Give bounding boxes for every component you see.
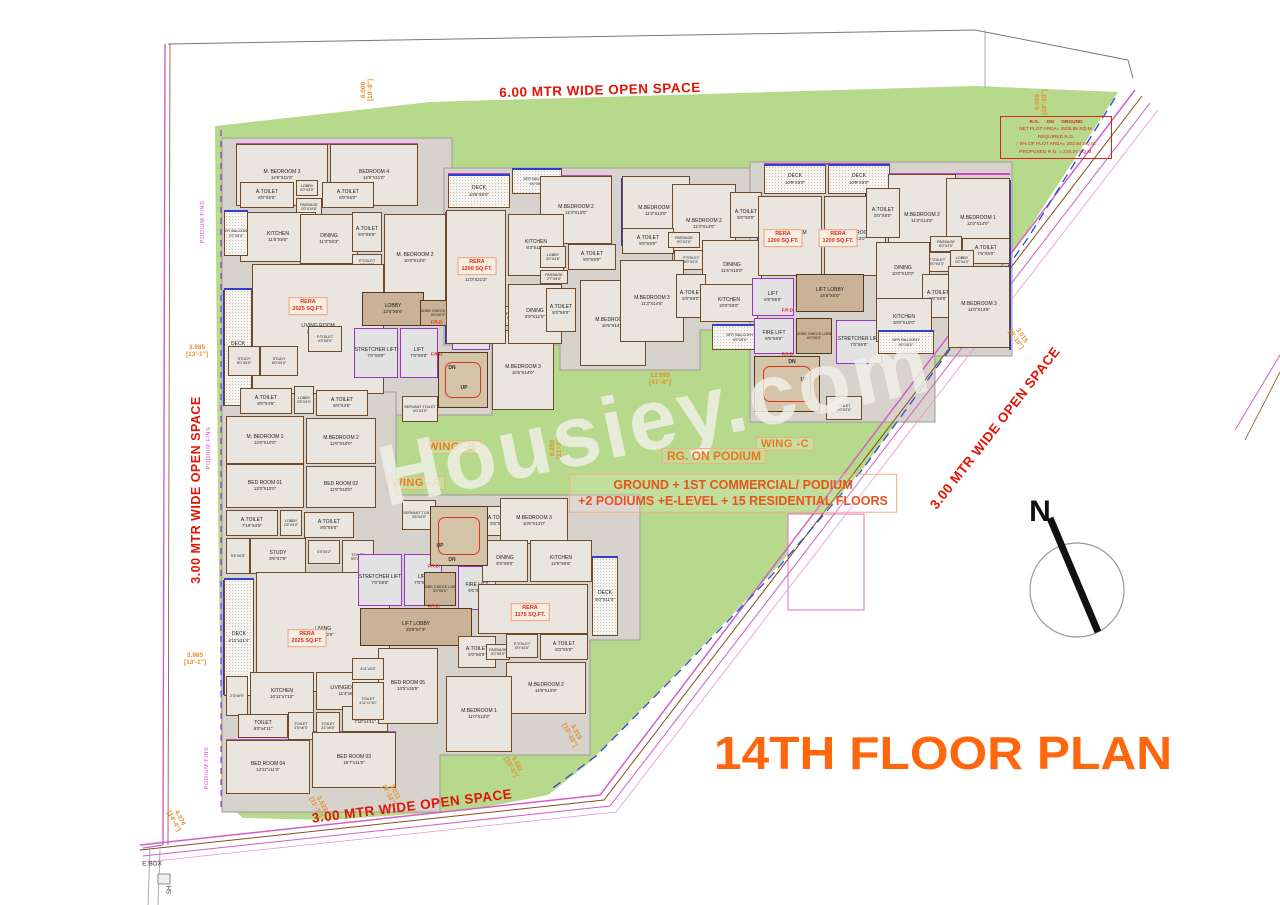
rg-on-ground-note: R.G. ON GROUND NET PLOT AREA= 2535.88 SQ… <box>1000 116 1112 159</box>
building-config-line: +2 PODIUMS +E-LEVEL + 15 RESIDENTIAL FLO… <box>578 493 888 509</box>
open-space-label-left: 3.00 MTR WIDE OPEN SPACE <box>189 396 203 584</box>
north-label: N <box>1029 495 1051 529</box>
boundary-tick <box>1128 60 1133 78</box>
boundary-left-2 <box>168 44 170 845</box>
road-corner-2 <box>1245 372 1280 440</box>
road-corner-1 <box>1235 355 1280 430</box>
boundary-top-right <box>975 30 1128 60</box>
sh-label: SH <box>167 886 173 894</box>
rg-note-line: PROPOSED R.G. = 210.37 SQ.M. <box>1003 149 1109 156</box>
rg-note-line: NET PLOT AREA= 2535.88 SQ.M. <box>1003 126 1109 133</box>
ebox-symbol <box>158 874 170 884</box>
floor-plan-canvas: M. BEDROOM 314'9"X11'0"BEDROOM 414'0"X11… <box>0 0 1280 905</box>
podium-notch <box>788 514 864 610</box>
boundary-left-1 <box>163 44 165 845</box>
boundary-top <box>168 30 975 44</box>
rg-note-line: :- 8% OF PLOT AREA= 202.84 SQ.M. <box>1003 141 1109 148</box>
rg-on-podium-label: RG. ON PODIUM <box>662 448 766 464</box>
rg-note-line: REQUIRED R.G. <box>1003 134 1109 141</box>
building-configuration-note: GROUND + 1ST COMMERCIAL/ PODIUM +2 PODIU… <box>569 474 897 513</box>
page-title: 14TH FLOOR PLAN <box>714 726 1172 780</box>
rg-note-line: R.G. ON GROUND <box>1003 119 1109 126</box>
corner-line-2 <box>148 848 150 905</box>
north-arrow-needle <box>1050 518 1098 632</box>
ebox-label: E.BOX <box>142 861 162 868</box>
building-config-line: GROUND + 1ST COMMERCIAL/ PODIUM <box>578 477 888 493</box>
